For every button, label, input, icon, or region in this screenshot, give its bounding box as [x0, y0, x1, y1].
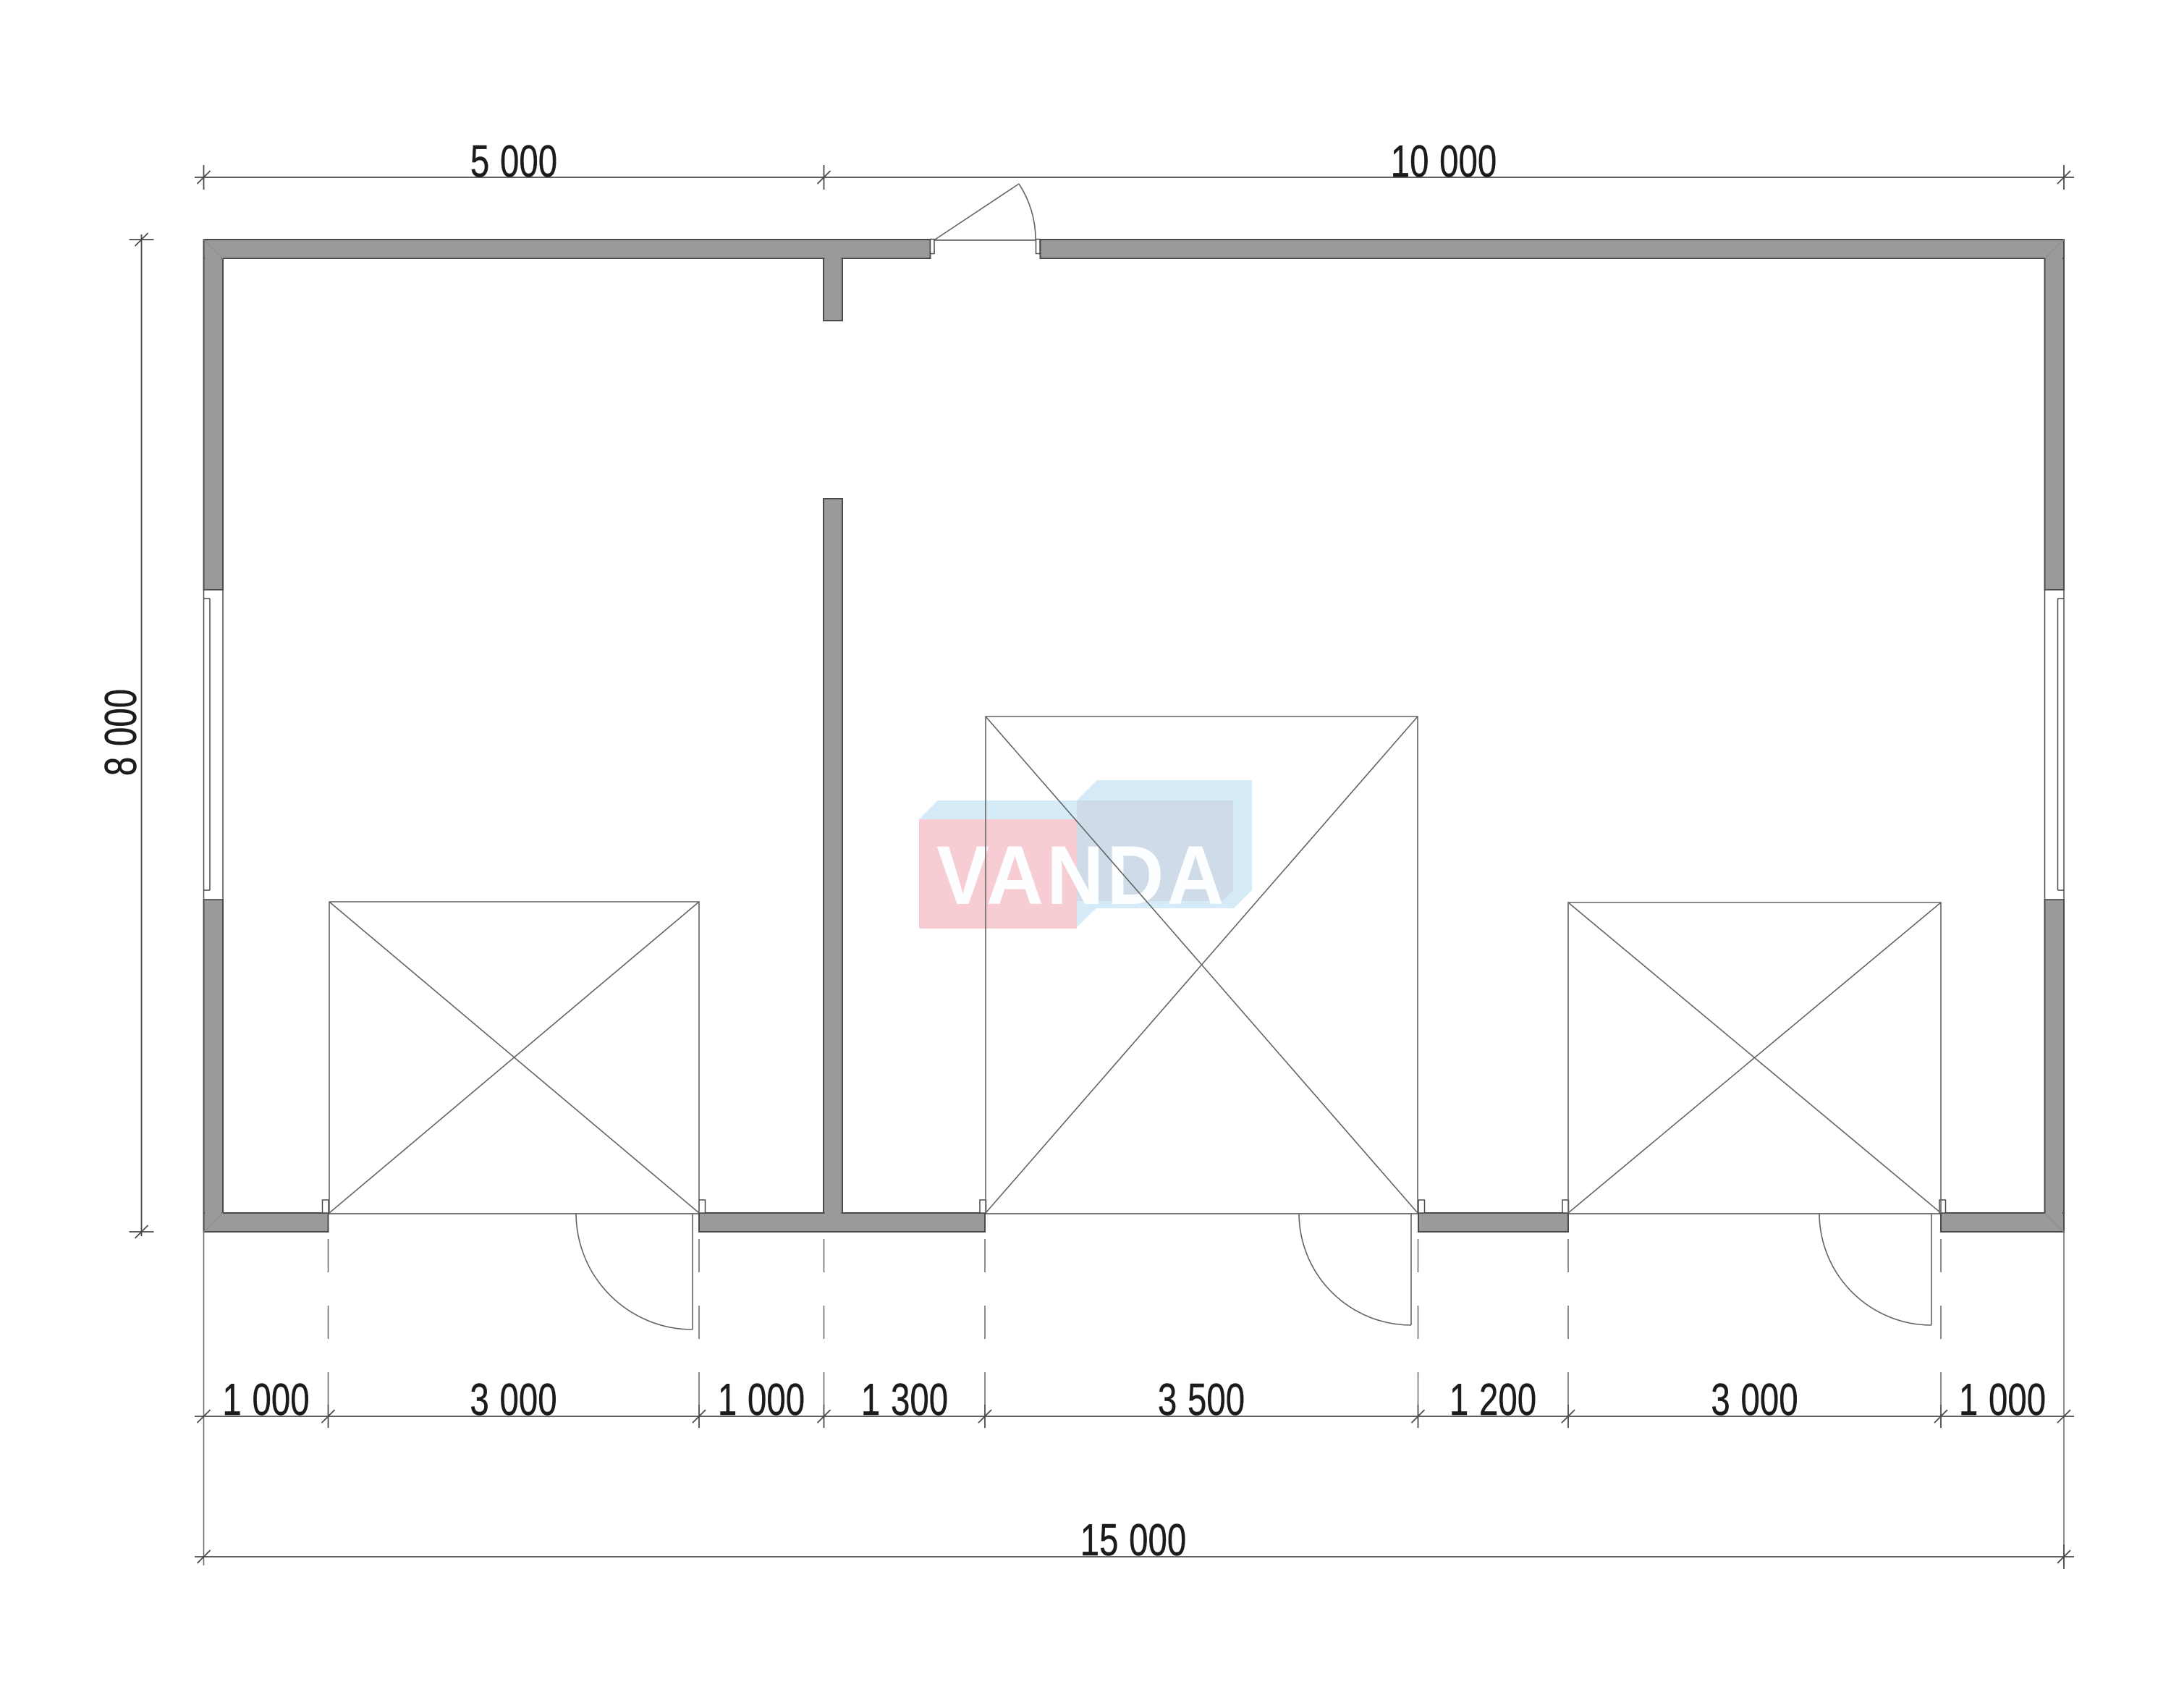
- svg-text:1 000: 1 000: [1959, 1374, 2046, 1425]
- svg-text:3 000: 3 000: [1711, 1374, 1798, 1425]
- svg-text:1 300: 1 300: [861, 1374, 948, 1425]
- svg-text:5 000: 5 000: [470, 136, 557, 187]
- svg-text:10 000: 10 000: [1391, 136, 1497, 187]
- svg-text:VANDA: VANDA: [936, 828, 1227, 921]
- svg-text:8 000: 8 000: [96, 689, 146, 776]
- svg-text:3 500: 3 500: [1158, 1374, 1245, 1425]
- svg-text:3 000: 3 000: [470, 1374, 556, 1425]
- svg-text:1 000: 1 000: [718, 1374, 805, 1425]
- svg-text:1 000: 1 000: [222, 1374, 309, 1425]
- svg-text:1 200: 1 200: [1450, 1374, 1536, 1425]
- svg-text:15 000: 15 000: [1080, 1515, 1187, 1565]
